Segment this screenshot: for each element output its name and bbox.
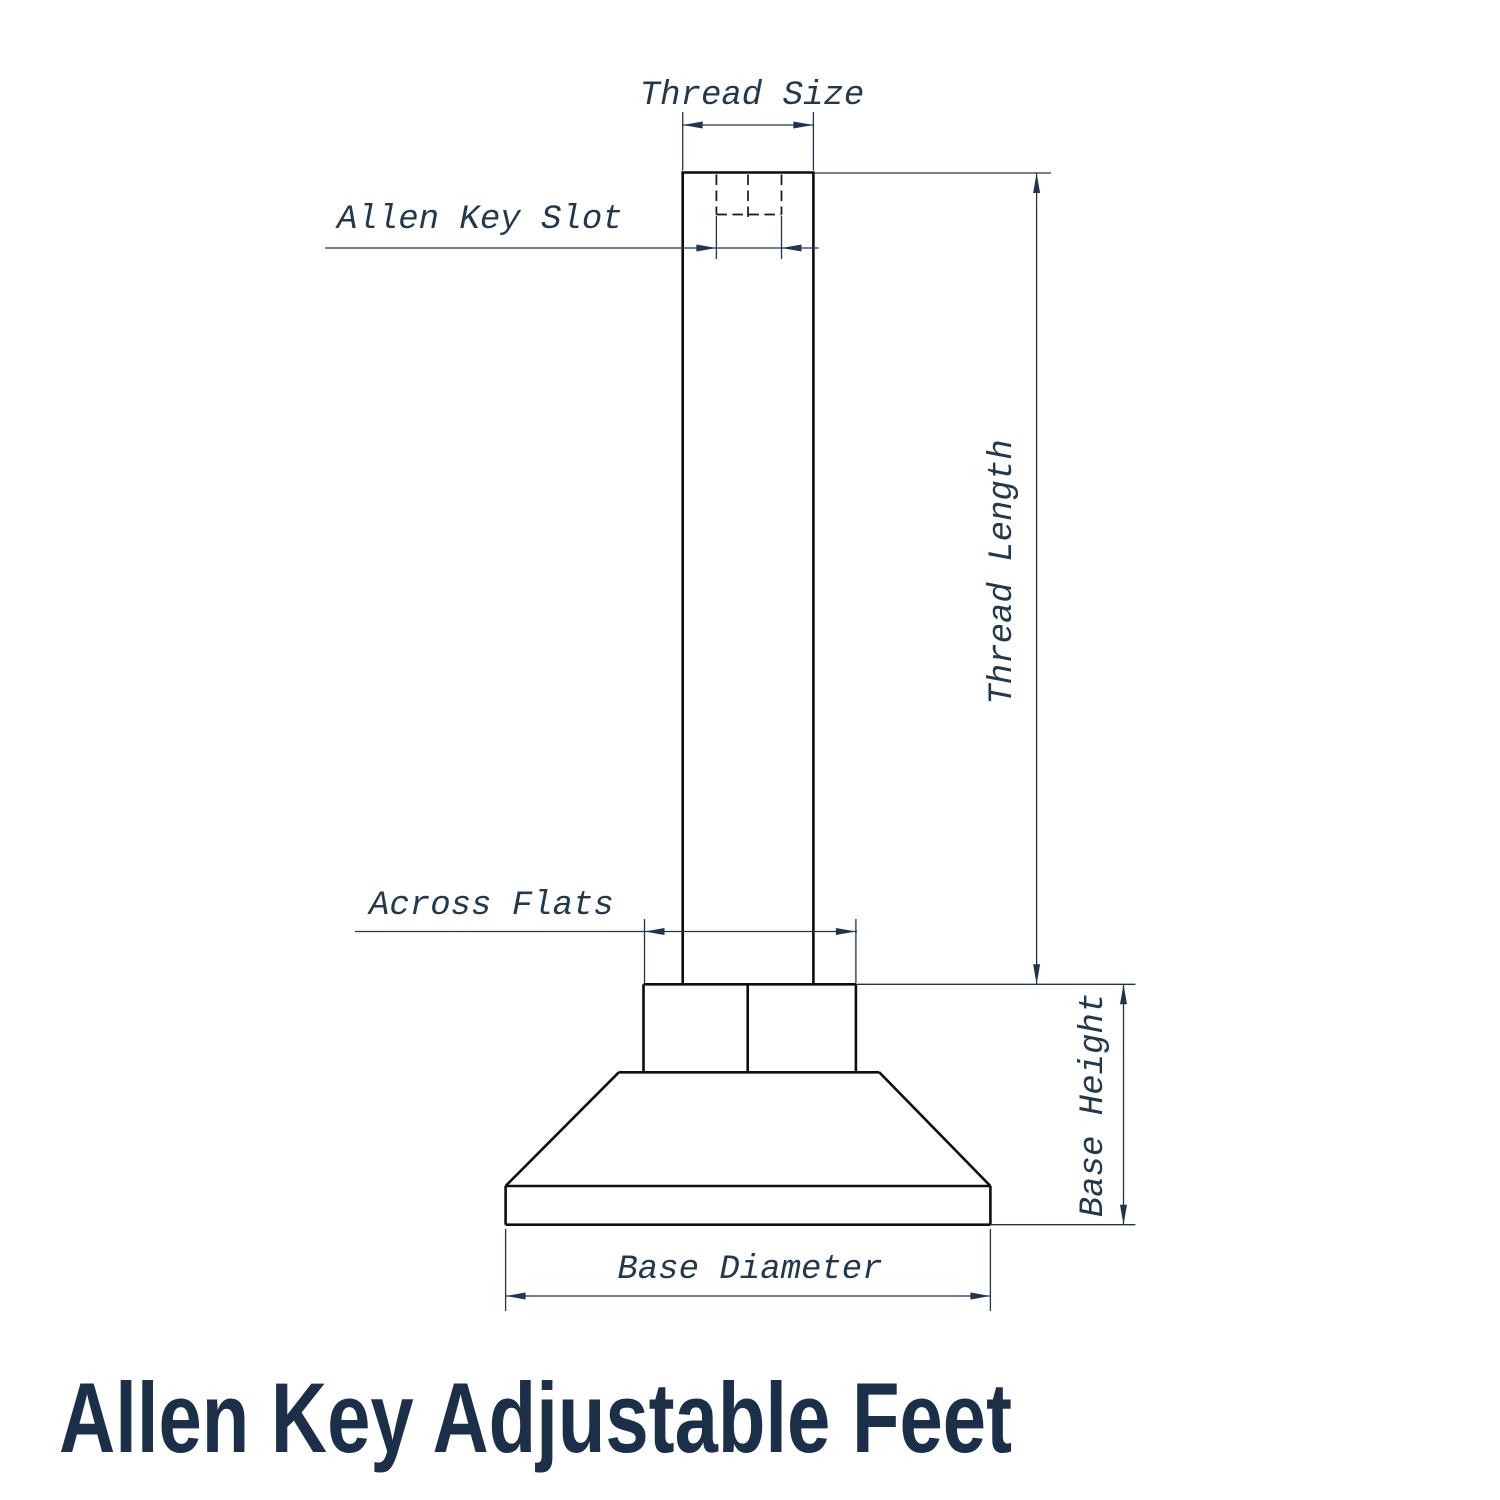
svg-text:Thread Length: Thread Length (984, 439, 1022, 704)
svg-text:Allen Key Adjustable Feet: Allen Key Adjustable Feet (59, 1362, 1012, 1473)
svg-text:Base Height: Base Height (1075, 993, 1113, 1217)
svg-text:Allen Key Slot: Allen Key Slot (335, 201, 623, 239)
svg-text:Across Flats: Across Flats (367, 887, 614, 925)
svg-text:Base Diameter: Base Diameter (617, 1251, 882, 1289)
svg-text:Thread Size: Thread Size (640, 77, 864, 115)
